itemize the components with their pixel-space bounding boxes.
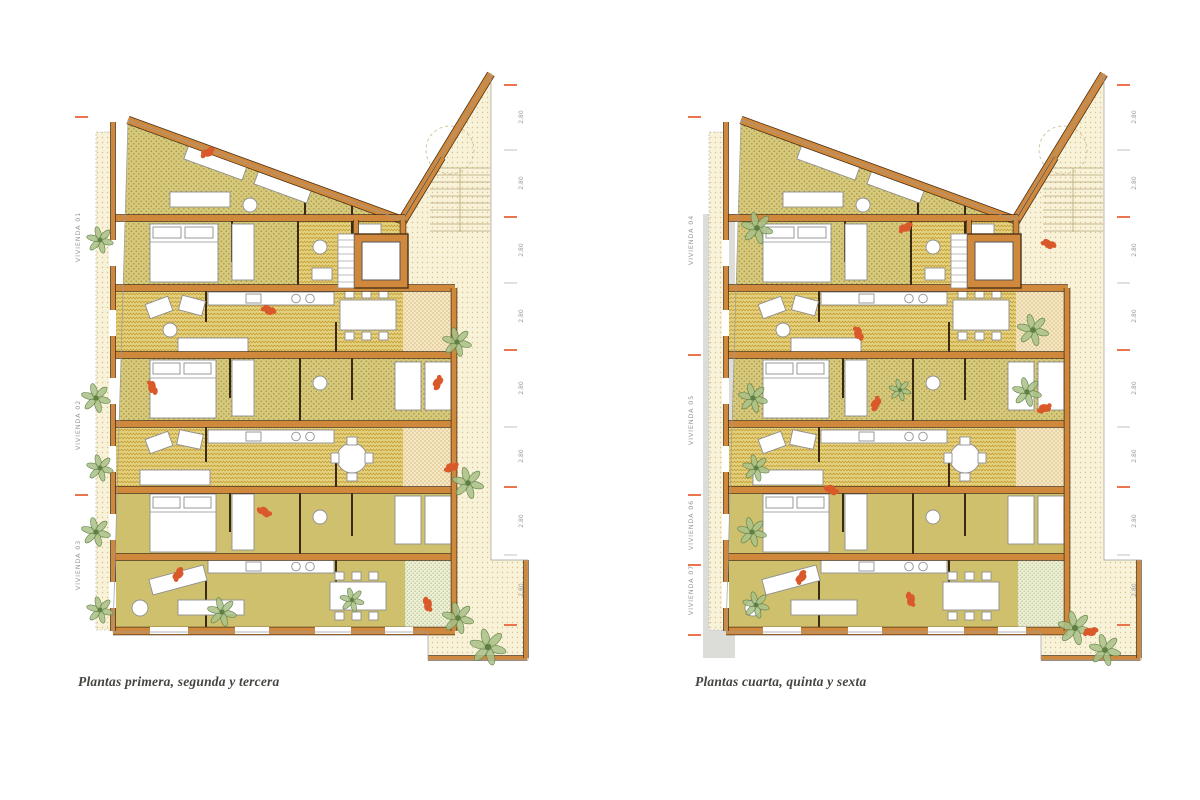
dimension-label: 2.80 bbox=[1131, 309, 1138, 323]
plan-caption-left: Plantas primera, segunda y tercera bbox=[78, 674, 279, 690]
dimension-label: 2.80 bbox=[1131, 514, 1138, 528]
dimension-label: 2.80 bbox=[518, 243, 525, 257]
drawing-sheet: 2.802.802.802.802.802.802.802.80VIVIENDA… bbox=[0, 0, 1200, 800]
dimension-label: 2.80 bbox=[518, 449, 525, 463]
dimension-label: 2.80 bbox=[518, 381, 525, 395]
dimension-label: 2.80 bbox=[518, 110, 525, 124]
vivienda-label: VIVIENDA 02 bbox=[74, 400, 82, 450]
vivienda-label: VIVIENDA 07 bbox=[687, 565, 695, 615]
dimension-label: 2.80 bbox=[518, 176, 525, 190]
dimension-label: 2.80 bbox=[1131, 176, 1138, 190]
dimension-line: 2.802.802.802.802.802.802.802.80 bbox=[1117, 85, 1138, 625]
dimension-label: 2.80 bbox=[1131, 583, 1138, 597]
dimension-line: 2.802.802.802.802.802.802.802.80 bbox=[504, 85, 525, 625]
vivienda-label: VIVIENDA 03 bbox=[74, 540, 82, 590]
plantas-1-2-3: 2.802.802.802.802.802.802.802.80VIVIENDA… bbox=[74, 74, 528, 666]
dimension-label: 2.80 bbox=[1131, 449, 1138, 463]
vivienda-label: VIVIENDA 01 bbox=[74, 212, 82, 262]
dimension-label: 2.80 bbox=[518, 583, 525, 597]
plan-caption-right: Plantas cuarta, quinta y sexta bbox=[695, 674, 866, 690]
dimension-label: 2.80 bbox=[518, 309, 525, 323]
dimension-label: 2.80 bbox=[1131, 243, 1138, 257]
dimension-label: 2.80 bbox=[518, 514, 525, 528]
vivienda-label: VIVIENDA 04 bbox=[687, 215, 695, 265]
dimension-label: 2.80 bbox=[1131, 381, 1138, 395]
plantas-4-5-6: 2.802.802.802.802.802.802.802.80VIVIENDA… bbox=[687, 74, 1141, 666]
dimension-label: 2.80 bbox=[1131, 110, 1138, 124]
vivienda-label: VIVIENDA 06 bbox=[687, 500, 695, 550]
vivienda-label: VIVIENDA 05 bbox=[687, 395, 695, 445]
